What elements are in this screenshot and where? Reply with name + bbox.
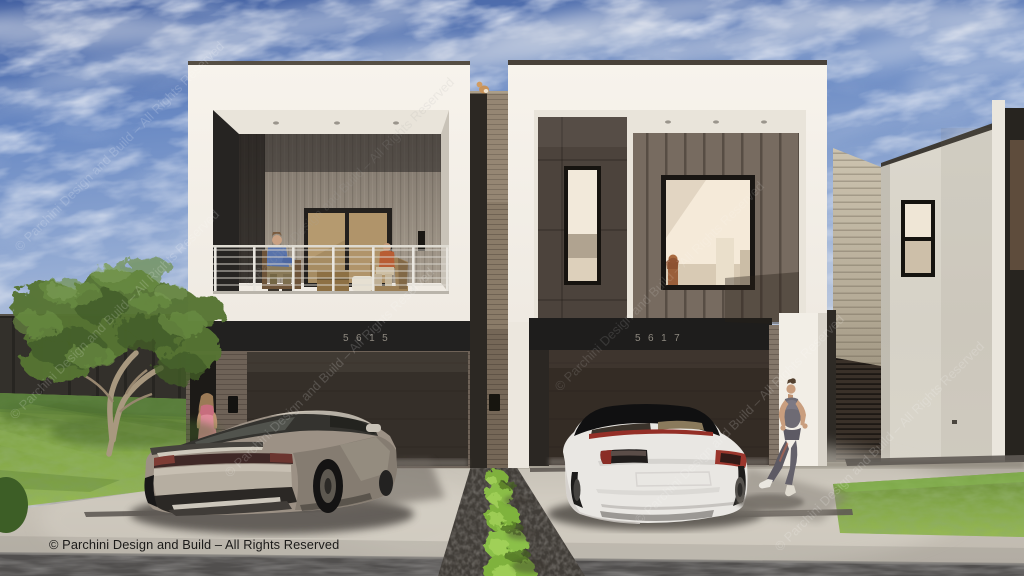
svg-text:© Parchini Design and Build –: © Parchini Design and Build – All Rights…	[49, 537, 339, 552]
svg-text:5617: 5617	[635, 333, 687, 344]
